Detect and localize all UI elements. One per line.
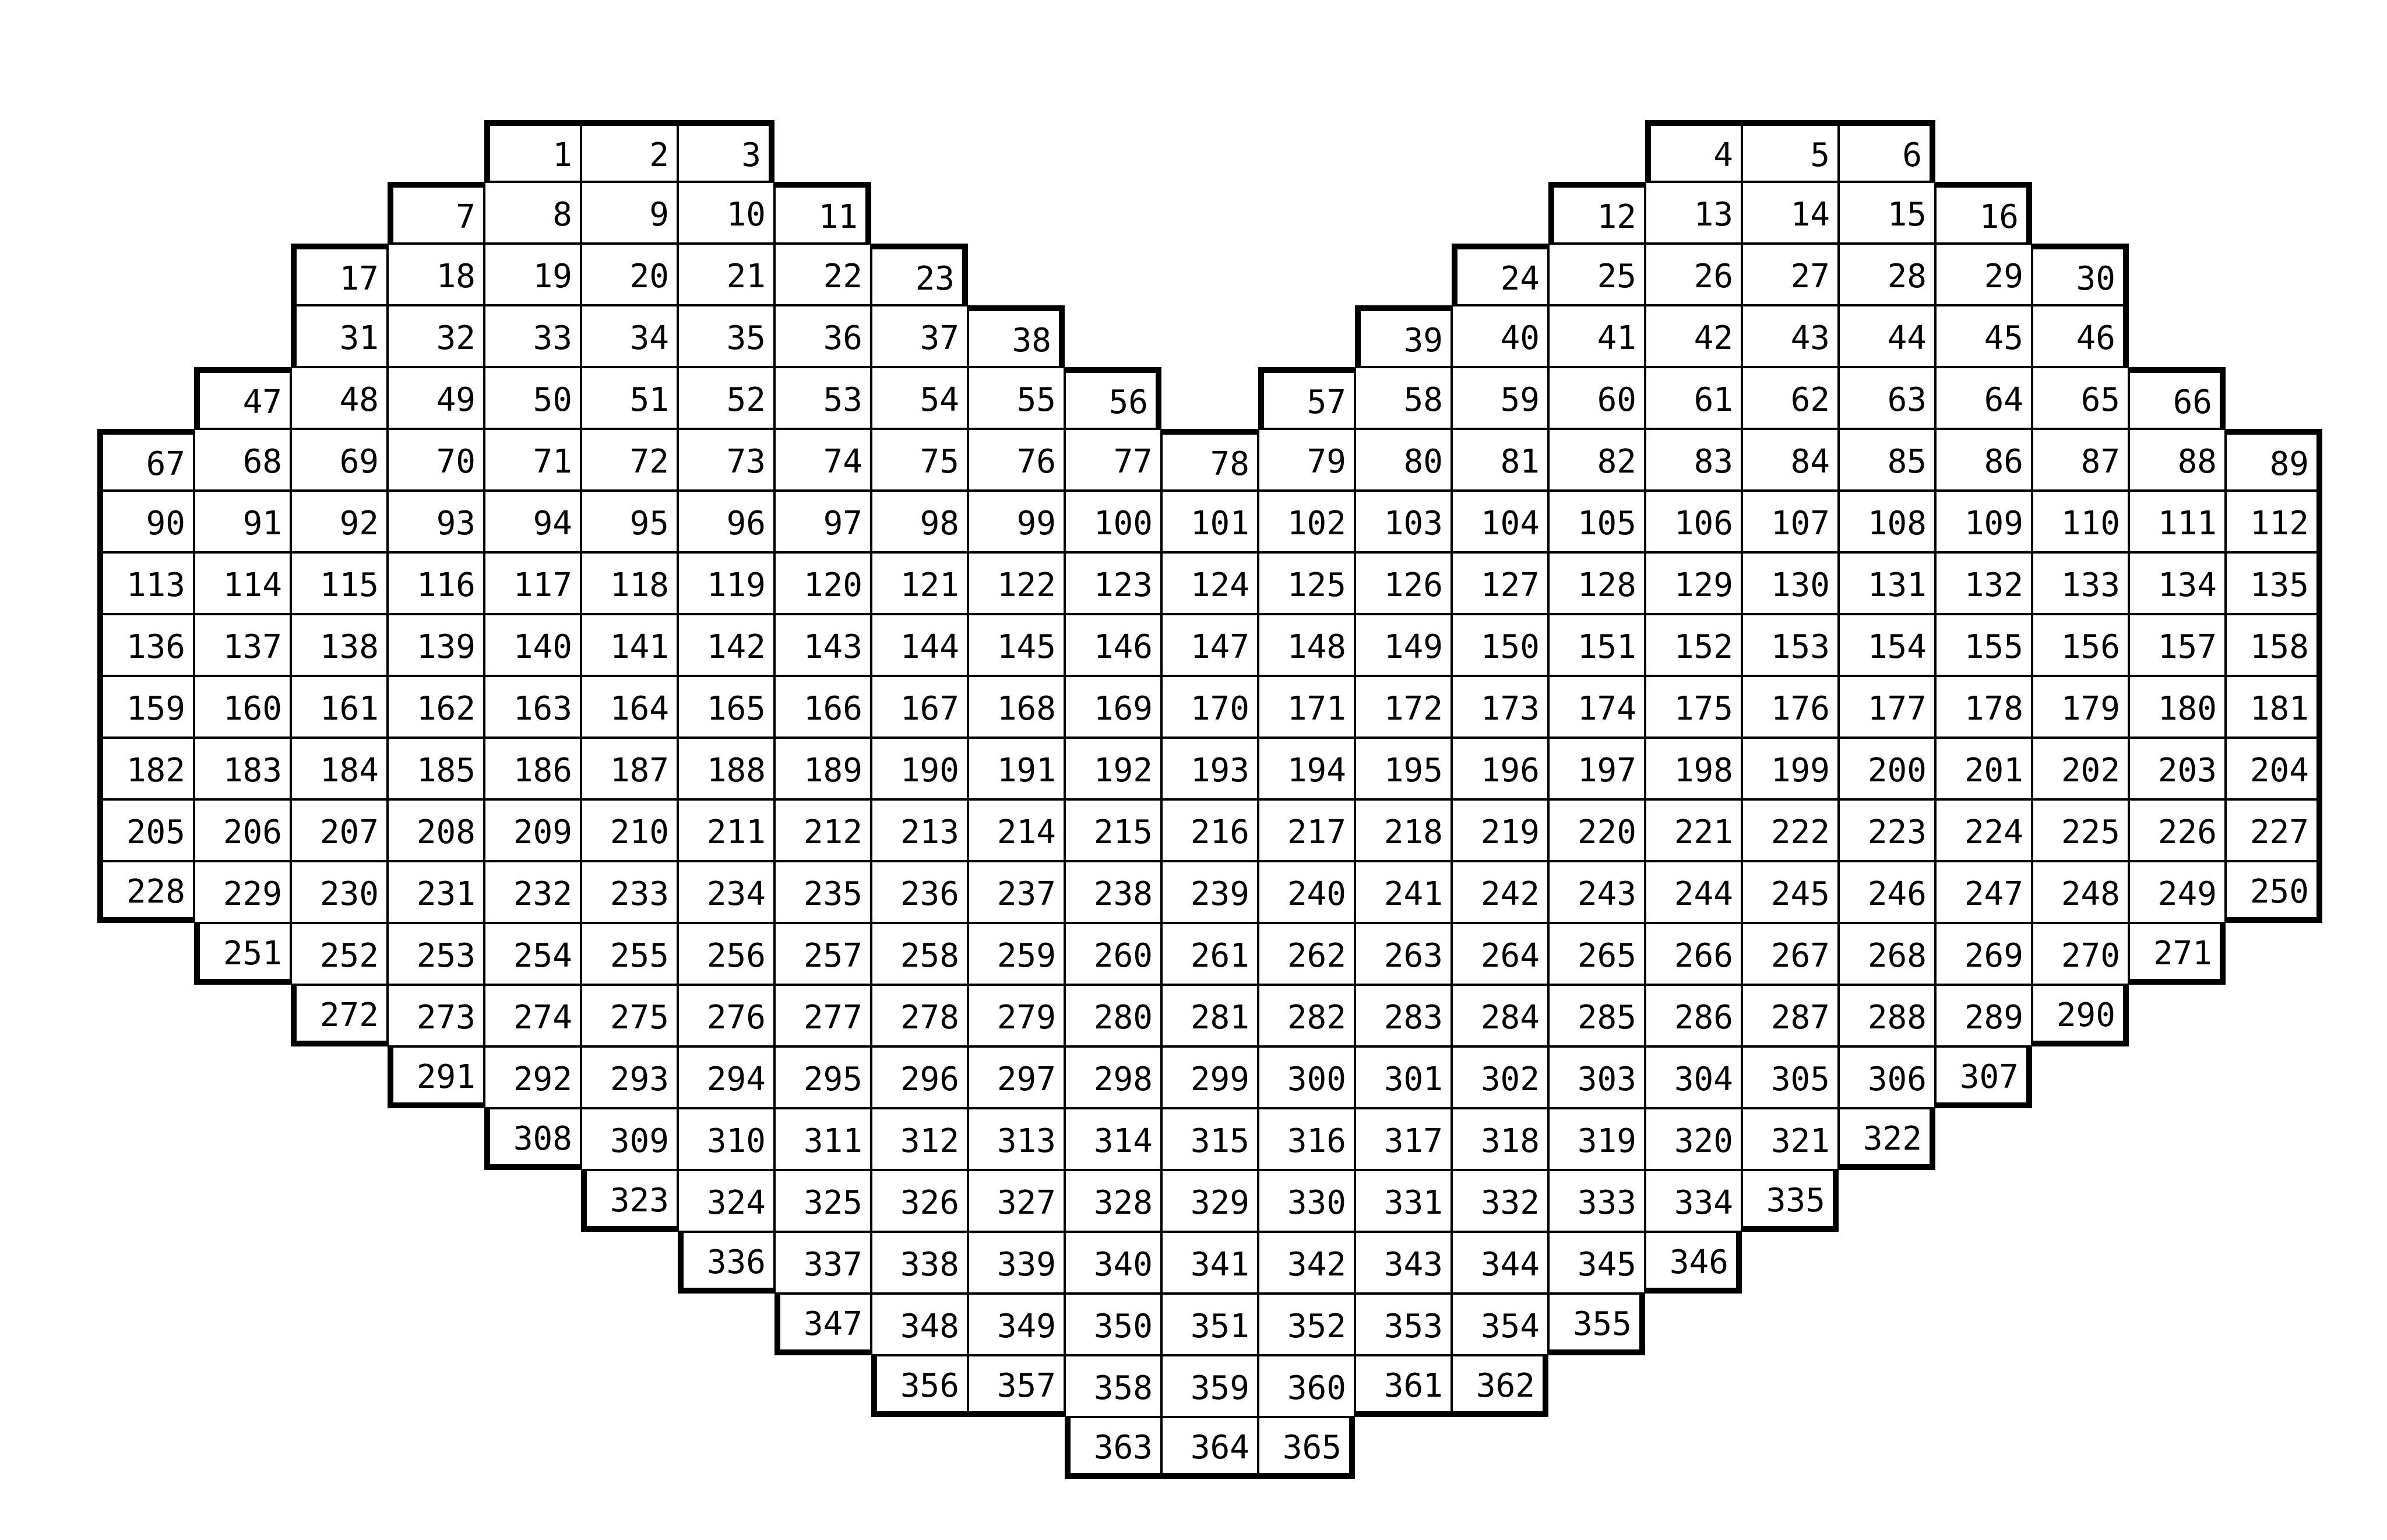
- day-cell: 223: [1839, 799, 1935, 861]
- day-cell: 90: [97, 491, 194, 552]
- day-cell: 48: [291, 367, 388, 429]
- day-cell: 76: [968, 429, 1065, 491]
- day-cell: 346: [1645, 1232, 1742, 1294]
- day-cell: 294: [678, 1046, 774, 1108]
- day-cell: 35: [678, 305, 774, 367]
- day-cell: 269: [1935, 923, 2032, 985]
- day-cell: 267: [1742, 923, 1839, 985]
- day-cell: 75: [871, 429, 968, 491]
- day-cell: 266: [1645, 923, 1742, 985]
- day-cell: 93: [388, 491, 484, 552]
- day-cell: 305: [1742, 1046, 1839, 1108]
- day-cell: 74: [774, 429, 871, 491]
- day-cell: 225: [2032, 799, 2129, 861]
- day-cell: 96: [678, 491, 774, 552]
- day-cell: 190: [871, 738, 968, 799]
- day-cell: 136: [97, 614, 194, 676]
- day-cell: 186: [484, 738, 581, 799]
- day-cell: 71: [484, 429, 581, 491]
- day-cell: 330: [1258, 1170, 1355, 1232]
- day-cell: 88: [2129, 429, 2226, 491]
- day-cell: 359: [1161, 1355, 1258, 1417]
- day-cell: 270: [2032, 923, 2129, 985]
- day-cell: 365: [1258, 1417, 1355, 1479]
- day-cell: 222: [1742, 799, 1839, 861]
- day-cell: 192: [1065, 738, 1161, 799]
- day-cell: 113: [97, 552, 194, 614]
- day-cell: 36: [774, 305, 871, 367]
- day-cell: 14: [1742, 182, 1839, 244]
- day-cell: 149: [1355, 614, 1452, 676]
- day-cell: 157: [2129, 614, 2226, 676]
- day-cell: 324: [678, 1170, 774, 1232]
- day-cell: 273: [388, 985, 484, 1046]
- day-cell: 257: [774, 923, 871, 985]
- day-cell: 188: [678, 738, 774, 799]
- day-cell: 37: [871, 305, 968, 367]
- day-cell: 309: [581, 1108, 678, 1170]
- day-cell: 253: [388, 923, 484, 985]
- day-cell: 10: [678, 182, 774, 244]
- heart-grid: 1234567891011121314151617181920212223242…: [0, 0, 2387, 1540]
- day-cell: 47: [194, 367, 291, 429]
- day-cell: 217: [1258, 799, 1355, 861]
- day-cell: 345: [1548, 1232, 1645, 1294]
- day-cell: 215: [1065, 799, 1161, 861]
- day-cell: 276: [678, 985, 774, 1046]
- day-cell: 260: [1065, 923, 1161, 985]
- day-cell: 105: [1548, 491, 1645, 552]
- day-cell: 341: [1161, 1232, 1258, 1294]
- day-cell: 163: [484, 676, 581, 738]
- day-cell: 182: [97, 738, 194, 799]
- day-cell: 301: [1355, 1046, 1452, 1108]
- day-cell: 258: [871, 923, 968, 985]
- day-cell: 247: [1935, 861, 2032, 923]
- day-cell: 271: [2129, 923, 2226, 985]
- day-cell: 23: [871, 244, 968, 305]
- day-cell: 5: [1742, 120, 1839, 182]
- day-cell: 187: [581, 738, 678, 799]
- day-cell: 89: [2226, 429, 2322, 491]
- day-cell: 94: [484, 491, 581, 552]
- day-cell: 235: [774, 861, 871, 923]
- day-cell: 43: [1742, 305, 1839, 367]
- day-cell: 67: [97, 429, 194, 491]
- day-cell: 326: [871, 1170, 968, 1232]
- day-cell: 154: [1839, 614, 1935, 676]
- day-cell: 54: [871, 367, 968, 429]
- day-cell: 66: [2129, 367, 2226, 429]
- day-cell: 53: [774, 367, 871, 429]
- day-cell: 22: [774, 244, 871, 305]
- day-cell: 308: [484, 1108, 581, 1170]
- day-cell: 250: [2226, 861, 2322, 923]
- day-cell: 153: [1742, 614, 1839, 676]
- day-cell: 148: [1258, 614, 1355, 676]
- day-cell: 244: [1645, 861, 1742, 923]
- day-cell: 287: [1742, 985, 1839, 1046]
- day-cell: 91: [194, 491, 291, 552]
- day-cell: 165: [678, 676, 774, 738]
- day-cell: 264: [1452, 923, 1548, 985]
- day-cell: 312: [871, 1108, 968, 1170]
- day-cell: 60: [1548, 367, 1645, 429]
- day-cell: 33: [484, 305, 581, 367]
- day-cell: 263: [1355, 923, 1452, 985]
- day-cell: 296: [871, 1046, 968, 1108]
- day-cell: 283: [1355, 985, 1452, 1046]
- day-cell: 85: [1839, 429, 1935, 491]
- day-cell: 207: [291, 799, 388, 861]
- day-cell: 40: [1452, 305, 1548, 367]
- day-cell: 231: [388, 861, 484, 923]
- day-cell: 28: [1839, 244, 1935, 305]
- day-cell: 232: [484, 861, 581, 923]
- day-cell: 252: [291, 923, 388, 985]
- day-cell: 313: [968, 1108, 1065, 1170]
- day-cell: 25: [1548, 244, 1645, 305]
- day-cell: 125: [1258, 552, 1355, 614]
- day-cell: 84: [1742, 429, 1839, 491]
- day-cell: 218: [1355, 799, 1452, 861]
- day-cell: 272: [291, 985, 388, 1046]
- day-cell: 70: [388, 429, 484, 491]
- day-cell: 159: [97, 676, 194, 738]
- day-cell: 325: [774, 1170, 871, 1232]
- day-cell: 291: [388, 1046, 484, 1108]
- day-cell: 39: [1355, 305, 1452, 367]
- day-cell: 221: [1645, 799, 1742, 861]
- day-cell: 176: [1742, 676, 1839, 738]
- day-cell: 209: [484, 799, 581, 861]
- day-cell: 299: [1161, 1046, 1258, 1108]
- day-cell: 224: [1935, 799, 2032, 861]
- day-cell: 297: [968, 1046, 1065, 1108]
- day-cell: 293: [581, 1046, 678, 1108]
- day-cell: 62: [1742, 367, 1839, 429]
- day-cell: 4: [1645, 120, 1742, 182]
- day-cell: 336: [678, 1232, 774, 1294]
- day-cell: 195: [1355, 738, 1452, 799]
- day-cell: 12: [1548, 182, 1645, 244]
- day-cell: 175: [1645, 676, 1742, 738]
- day-cell: 199: [1742, 738, 1839, 799]
- day-cell: 201: [1935, 738, 2032, 799]
- day-cell: 104: [1452, 491, 1548, 552]
- day-cell: 98: [871, 491, 968, 552]
- day-cell: 185: [388, 738, 484, 799]
- day-cell: 286: [1645, 985, 1742, 1046]
- day-cell: 280: [1065, 985, 1161, 1046]
- day-cell: 134: [2129, 552, 2226, 614]
- day-cell: 289: [1935, 985, 2032, 1046]
- day-cell: 161: [291, 676, 388, 738]
- day-cell: 344: [1452, 1232, 1548, 1294]
- day-cell: 17: [291, 244, 388, 305]
- day-cell: 295: [774, 1046, 871, 1108]
- day-cell: 237: [968, 861, 1065, 923]
- day-cell: 256: [678, 923, 774, 985]
- day-cell: 281: [1161, 985, 1258, 1046]
- day-cell: 275: [581, 985, 678, 1046]
- day-cell: 204: [2226, 738, 2322, 799]
- day-cell: 333: [1548, 1170, 1645, 1232]
- day-cell: 290: [2032, 985, 2129, 1046]
- day-cell: 121: [871, 552, 968, 614]
- day-cell: 55: [968, 367, 1065, 429]
- day-cell: 329: [1161, 1170, 1258, 1232]
- day-cell: 140: [484, 614, 581, 676]
- day-cell: 38: [968, 305, 1065, 367]
- day-cell: 51: [581, 367, 678, 429]
- day-cell: 119: [678, 552, 774, 614]
- day-cell: 356: [871, 1355, 968, 1417]
- day-cell: 354: [1452, 1294, 1548, 1355]
- day-cell: 243: [1548, 861, 1645, 923]
- day-cell: 128: [1548, 552, 1645, 614]
- day-cell: 87: [2032, 429, 2129, 491]
- day-cell: 106: [1645, 491, 1742, 552]
- day-cell: 300: [1258, 1046, 1355, 1108]
- day-cell: 20: [581, 244, 678, 305]
- day-cell: 49: [388, 367, 484, 429]
- day-cell: 69: [291, 429, 388, 491]
- day-cell: 254: [484, 923, 581, 985]
- day-cell: 95: [581, 491, 678, 552]
- day-cell: 228: [97, 861, 194, 923]
- day-cell: 189: [774, 738, 871, 799]
- day-cell: 65: [2032, 367, 2129, 429]
- day-cell: 339: [968, 1232, 1065, 1294]
- day-cell: 288: [1839, 985, 1935, 1046]
- day-cell: 77: [1065, 429, 1161, 491]
- day-cell: 261: [1161, 923, 1258, 985]
- day-cell: 86: [1935, 429, 2032, 491]
- day-cell: 279: [968, 985, 1065, 1046]
- day-cell: 364: [1161, 1417, 1258, 1479]
- day-cell: 135: [2226, 552, 2322, 614]
- day-cell: 102: [1258, 491, 1355, 552]
- day-cell: 3: [678, 120, 774, 182]
- day-cell: 26: [1645, 244, 1742, 305]
- day-cell: 328: [1065, 1170, 1161, 1232]
- day-cell: 350: [1065, 1294, 1161, 1355]
- day-cell: 265: [1548, 923, 1645, 985]
- day-cell: 124: [1161, 552, 1258, 614]
- day-cell: 226: [2129, 799, 2226, 861]
- day-cell: 144: [871, 614, 968, 676]
- day-cell: 318: [1452, 1108, 1548, 1170]
- day-cell: 30: [2032, 244, 2129, 305]
- day-cell: 241: [1355, 861, 1452, 923]
- day-cell: 360: [1258, 1355, 1355, 1417]
- day-cell: 216: [1161, 799, 1258, 861]
- day-cell: 220: [1548, 799, 1645, 861]
- day-cell: 194: [1258, 738, 1355, 799]
- day-cell: 15: [1839, 182, 1935, 244]
- day-cell: 316: [1258, 1108, 1355, 1170]
- day-cell: 42: [1645, 305, 1742, 367]
- day-cell: 334: [1645, 1170, 1742, 1232]
- day-cell: 150: [1452, 614, 1548, 676]
- day-cell: 101: [1161, 491, 1258, 552]
- day-cell: 168: [968, 676, 1065, 738]
- day-cell: 114: [194, 552, 291, 614]
- day-cell: 307: [1935, 1046, 2032, 1108]
- day-cell: 107: [1742, 491, 1839, 552]
- day-cell: 141: [581, 614, 678, 676]
- day-cell: 68: [194, 429, 291, 491]
- day-cell: 362: [1452, 1355, 1548, 1417]
- day-cell: 156: [2032, 614, 2129, 676]
- day-cell: 110: [2032, 491, 2129, 552]
- day-cell: 27: [1742, 244, 1839, 305]
- day-cell: 262: [1258, 923, 1355, 985]
- day-cell: 99: [968, 491, 1065, 552]
- day-cell: 130: [1742, 552, 1839, 614]
- day-cell: 306: [1839, 1046, 1935, 1108]
- day-cell: 170: [1161, 676, 1258, 738]
- day-cell: 11: [774, 182, 871, 244]
- day-cell: 203: [2129, 738, 2226, 799]
- day-cell: 200: [1839, 738, 1935, 799]
- day-cell: 32: [388, 305, 484, 367]
- day-cell: 109: [1935, 491, 2032, 552]
- day-cell: 285: [1548, 985, 1645, 1046]
- day-cell: 172: [1355, 676, 1452, 738]
- day-cell: 353: [1355, 1294, 1452, 1355]
- day-cell: 180: [2129, 676, 2226, 738]
- day-cell: 213: [871, 799, 968, 861]
- day-cell: 21: [678, 244, 774, 305]
- day-cell: 145: [968, 614, 1065, 676]
- day-cell: 219: [1452, 799, 1548, 861]
- day-cell: 24: [1452, 244, 1548, 305]
- day-cell: 317: [1355, 1108, 1452, 1170]
- day-cell: 240: [1258, 861, 1355, 923]
- day-cell: 292: [484, 1046, 581, 1108]
- day-cell: 233: [581, 861, 678, 923]
- day-cell: 61: [1645, 367, 1742, 429]
- day-cell: 13: [1645, 182, 1742, 244]
- day-cell: 123: [1065, 552, 1161, 614]
- day-cell: 63: [1839, 367, 1935, 429]
- day-cell: 83: [1645, 429, 1742, 491]
- day-cell: 7: [388, 182, 484, 244]
- day-cell: 56: [1065, 367, 1161, 429]
- day-cell: 29: [1935, 244, 2032, 305]
- day-cell: 41: [1548, 305, 1645, 367]
- day-cell: 239: [1161, 861, 1258, 923]
- day-cell: 52: [678, 367, 774, 429]
- day-cell: 120: [774, 552, 871, 614]
- day-cell: 2: [581, 120, 678, 182]
- day-cell: 122: [968, 552, 1065, 614]
- day-cell: 249: [2129, 861, 2226, 923]
- day-cell: 349: [968, 1294, 1065, 1355]
- day-cell: 117: [484, 552, 581, 614]
- day-cell: 315: [1161, 1108, 1258, 1170]
- day-cell: 229: [194, 861, 291, 923]
- day-cell: 205: [97, 799, 194, 861]
- day-cell: 259: [968, 923, 1065, 985]
- day-cell: 1: [484, 120, 581, 182]
- day-cell: 78: [1161, 429, 1258, 491]
- day-cell: 363: [1065, 1417, 1161, 1479]
- day-cell: 155: [1935, 614, 2032, 676]
- day-cell: 133: [2032, 552, 2129, 614]
- day-cell: 79: [1258, 429, 1355, 491]
- day-cell: 81: [1452, 429, 1548, 491]
- day-cell: 342: [1258, 1232, 1355, 1294]
- day-cell: 274: [484, 985, 581, 1046]
- day-cell: 198: [1645, 738, 1742, 799]
- day-cell: 152: [1645, 614, 1742, 676]
- day-cell: 236: [871, 861, 968, 923]
- day-cell: 46: [2032, 305, 2129, 367]
- day-cell: 162: [388, 676, 484, 738]
- day-cell: 230: [291, 861, 388, 923]
- day-cell: 348: [871, 1294, 968, 1355]
- day-cell: 193: [1161, 738, 1258, 799]
- day-cell: 311: [774, 1108, 871, 1170]
- day-cell: 302: [1452, 1046, 1548, 1108]
- day-cell: 248: [2032, 861, 2129, 923]
- day-cell: 138: [291, 614, 388, 676]
- day-cell: 184: [291, 738, 388, 799]
- day-cell: 352: [1258, 1294, 1355, 1355]
- day-cell: 361: [1355, 1355, 1452, 1417]
- day-cell: 214: [968, 799, 1065, 861]
- day-cell: 343: [1355, 1232, 1452, 1294]
- day-cell: 158: [2226, 614, 2322, 676]
- day-cell: 173: [1452, 676, 1548, 738]
- day-cell: 208: [388, 799, 484, 861]
- day-cell: 234: [678, 861, 774, 923]
- day-cell: 6: [1839, 120, 1935, 182]
- day-cell: 197: [1548, 738, 1645, 799]
- day-cell: 174: [1548, 676, 1645, 738]
- day-cell: 177: [1839, 676, 1935, 738]
- day-cell: 166: [774, 676, 871, 738]
- day-cell: 332: [1452, 1170, 1548, 1232]
- day-cell: 111: [2129, 491, 2226, 552]
- day-cell: 327: [968, 1170, 1065, 1232]
- day-cell: 171: [1258, 676, 1355, 738]
- day-cell: 80: [1355, 429, 1452, 491]
- day-cell: 169: [1065, 676, 1161, 738]
- day-cell: 227: [2226, 799, 2322, 861]
- day-cell: 245: [1742, 861, 1839, 923]
- day-cell: 277: [774, 985, 871, 1046]
- day-cell: 16: [1935, 182, 2032, 244]
- day-cell: 146: [1065, 614, 1161, 676]
- day-cell: 143: [774, 614, 871, 676]
- day-cell: 337: [774, 1232, 871, 1294]
- day-cell: 255: [581, 923, 678, 985]
- day-cell: 45: [1935, 305, 2032, 367]
- day-cell: 160: [194, 676, 291, 738]
- day-cell: 212: [774, 799, 871, 861]
- day-cell: 57: [1258, 367, 1355, 429]
- day-cell: 59: [1452, 367, 1548, 429]
- day-cell: 338: [871, 1232, 968, 1294]
- day-cell: 320: [1645, 1108, 1742, 1170]
- day-cell: 73: [678, 429, 774, 491]
- day-cell: 304: [1645, 1046, 1742, 1108]
- day-cell: 331: [1355, 1170, 1452, 1232]
